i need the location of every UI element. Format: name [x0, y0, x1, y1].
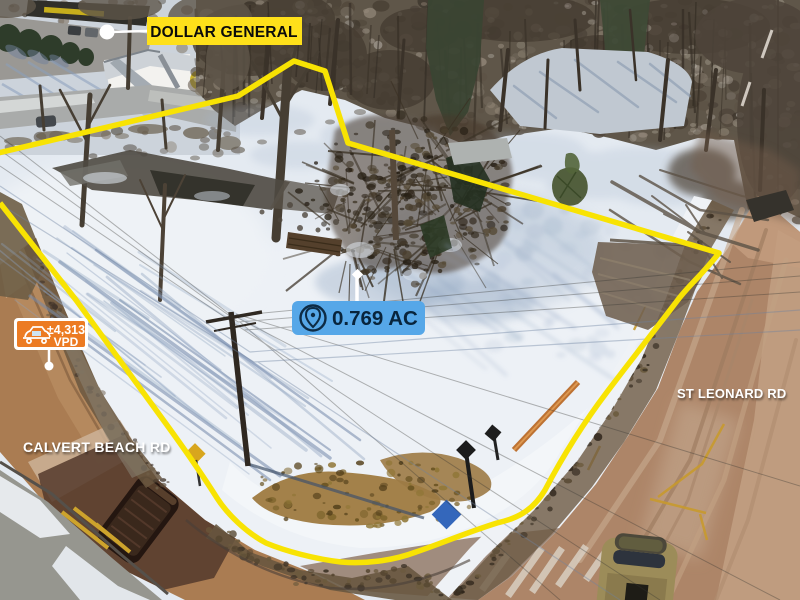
svg-text:DOLLAR GENERAL: DOLLAR GENERAL — [150, 24, 297, 41]
svg-text:VPD: VPD — [54, 335, 79, 349]
svg-text:0.769 AC: 0.769 AC — [332, 307, 418, 330]
svg-text:CALVERT BEACH RD: CALVERT BEACH RD — [23, 439, 171, 455]
svg-text:ST LEONARD RD: ST LEONARD RD — [677, 386, 787, 401]
